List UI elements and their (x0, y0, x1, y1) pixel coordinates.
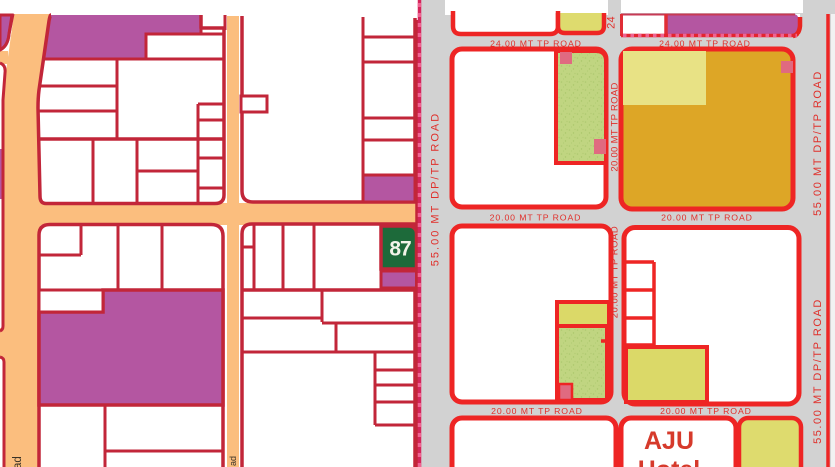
svg-text:AJU: AJU (644, 427, 694, 455)
svg-text:ad: ad (12, 456, 24, 467)
svg-text:24: 24 (606, 16, 618, 29)
svg-text:24.00 MT TP ROAD: 24.00 MT TP ROAD (659, 39, 751, 49)
svg-text:55.00 MT DP/TP ROAD: 55.00 MT DP/TP ROAD (812, 70, 824, 216)
svg-text:55.00 MT DP/TP ROAD: 55.00 MT DP/TP ROAD (430, 112, 442, 266)
svg-text:24.00 MT TP ROAD: 24.00 MT TP ROAD (490, 39, 582, 49)
svg-text:55.00 MT DP/TP ROAD: 55.00 MT DP/TP ROAD (812, 298, 824, 444)
svg-text:20.00 MT TP ROAD: 20.00 MT TP ROAD (491, 406, 583, 416)
svg-text:87: 87 (389, 238, 411, 261)
svg-text:20.00 MT TP ROAD: 20.00 MT TP ROAD (661, 213, 753, 223)
svg-text:Hotel: Hotel (638, 456, 701, 467)
svg-text:20.00 MT TP ROAD: 20.00 MT TP ROAD (610, 82, 621, 171)
svg-text:20.00 MT TP ROAD: 20.00 MT TP ROAD (490, 213, 582, 223)
svg-text:20.00 MT TP ROAD: 20.00 MT TP ROAD (660, 406, 752, 416)
svg-text:20.00 MT TP ROAD: 20.00 MT TP ROAD (610, 226, 621, 318)
svg-text:ad: ad (228, 456, 238, 466)
